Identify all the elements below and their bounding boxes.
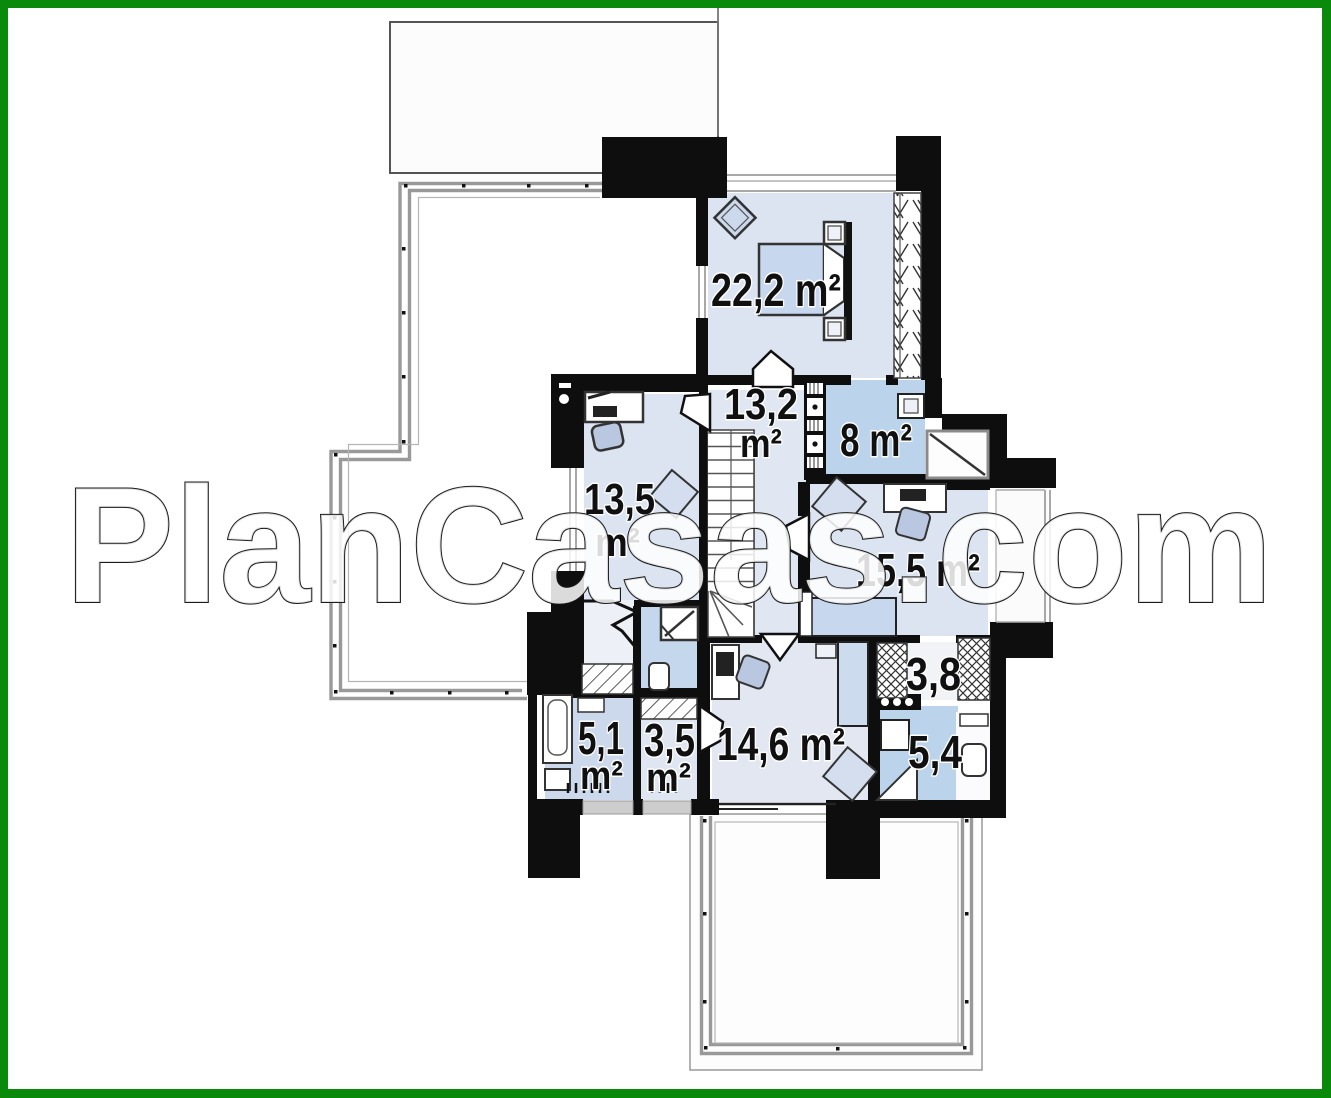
svg-text:m²: m² <box>580 754 623 798</box>
svg-text:PlanCasas.com: PlanCasas.com <box>65 453 1273 637</box>
svg-text:14,6 m²: 14,6 m² <box>717 718 845 770</box>
svg-text:3,8: 3,8 <box>906 648 961 700</box>
svg-text:5,4: 5,4 <box>908 726 962 778</box>
svg-text:m²: m² <box>646 756 691 800</box>
svg-text:22,2 m²: 22,2 m² <box>711 264 841 316</box>
